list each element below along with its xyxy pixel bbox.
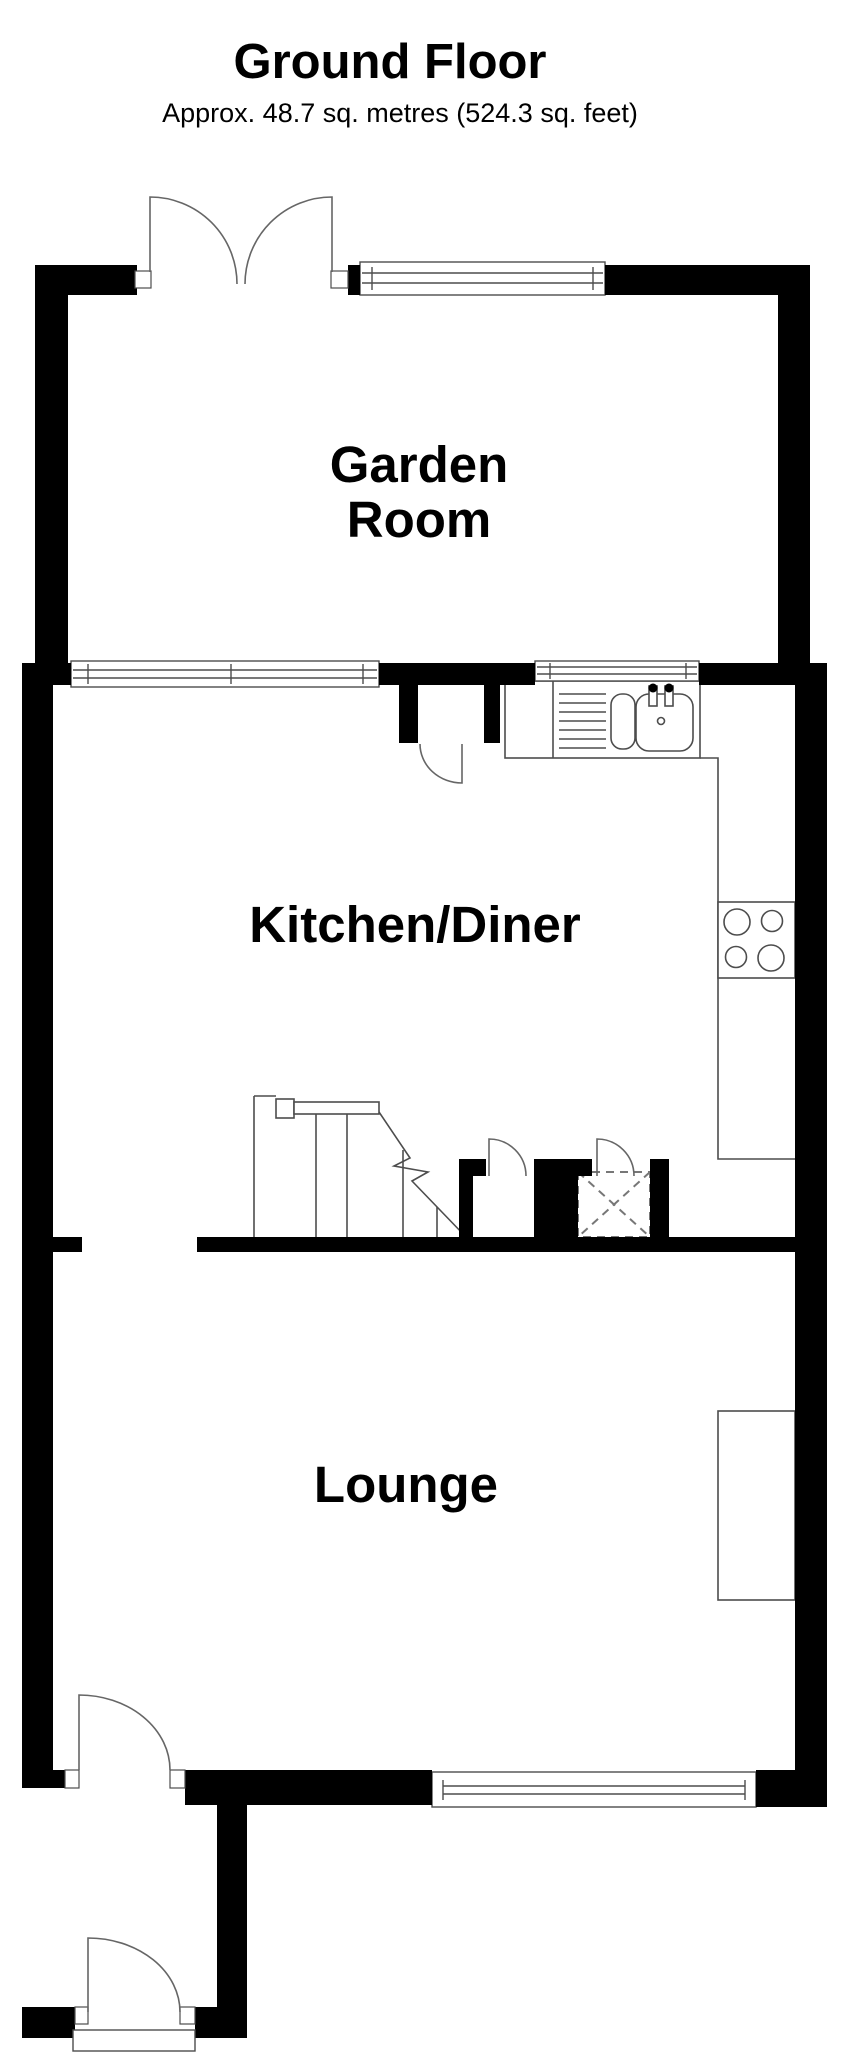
sink-unit-symbol [505,681,700,758]
door-jamb [180,2007,195,2024]
room-label-lounge: Lounge [106,1457,706,1512]
closet-door-left [489,1139,526,1176]
door-jamb [331,271,348,288]
stairs-break-line [379,1112,466,1237]
wall-segment [22,2007,75,2038]
wall-segment [399,685,418,743]
tap-head [649,684,658,693]
wall-segment [534,1159,592,1176]
wall-segment [534,1176,578,1237]
wall-segment [459,1176,473,1237]
door-jamb [75,2007,88,2024]
door-jamb [65,1770,79,1788]
wall-segment [217,1788,247,2038]
room-label-garden-room: Garden Room [119,437,719,547]
floorplan-drawing [0,0,847,2069]
window-lounge-south [432,1772,756,1807]
storage-cupboard-symbol [578,1172,650,1237]
door-jamb [170,1770,185,1788]
chimney-breast [718,1411,795,1600]
window-garden-room-top [360,262,605,295]
floorplan-ground-floor: Ground Floor Approx. 48.7 sq. metres (52… [0,0,847,2069]
tap-head [665,684,674,693]
porch-exterior-door [88,1938,180,2012]
wall-segment [22,1770,65,1788]
lounge-entrance-door [79,1695,170,1770]
wall-segment [484,685,500,743]
wall-segment [22,663,53,1788]
window-above-sink [535,661,699,681]
stairs-handrail [294,1102,379,1114]
door-jamb [135,271,151,288]
wall-segment [778,265,810,685]
wall-segment [197,1237,827,1252]
closet-door-right [597,1139,634,1176]
wall-segment [459,1159,486,1176]
staircase-symbol [254,1096,466,1237]
entrance-threshold [73,2030,195,2051]
hob-symbol [718,902,795,978]
french-door-right-leaf [245,197,332,284]
wall-segment [53,1237,82,1252]
room-label-kitchen-diner: Kitchen/Diner [115,897,715,952]
wall-segment [195,2007,247,2038]
wall-segment [35,265,68,685]
window-kitchen-north [71,661,379,687]
wall-segment [379,663,535,685]
hob-outline [718,902,795,978]
french-door-left-leaf [150,197,237,284]
drainer-board [611,694,635,749]
wall-segment [348,265,360,295]
wall-segment [756,1770,827,1807]
wall-segment [699,663,810,685]
vestibule-door [420,744,462,783]
wall-segment [650,1159,669,1237]
newel-post [276,1099,294,1118]
wall-segment [795,663,827,1807]
